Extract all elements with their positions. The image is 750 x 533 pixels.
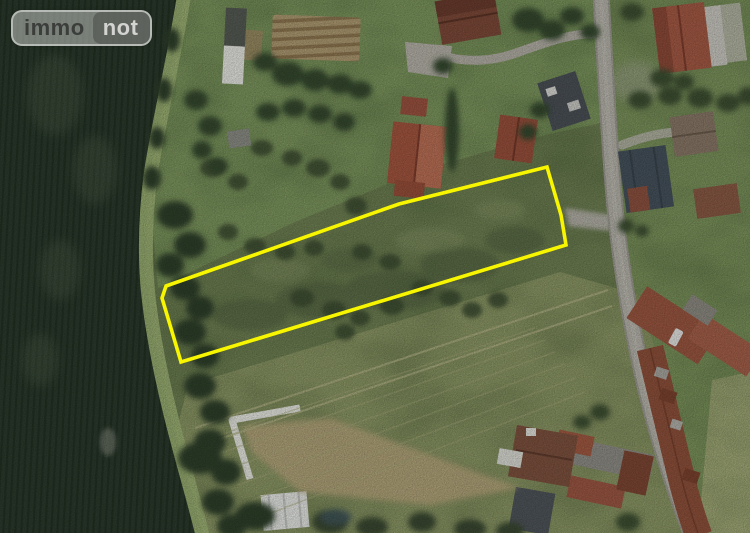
immonot-logo-immo: immo — [13, 12, 93, 44]
immonot-logo: immo not — [11, 10, 152, 46]
immonot-logo-not: not — [93, 12, 151, 44]
photo-grain — [0, 0, 750, 533]
aerial-photo-viewport: immo not — [0, 0, 750, 533]
aerial-photo — [0, 0, 750, 533]
